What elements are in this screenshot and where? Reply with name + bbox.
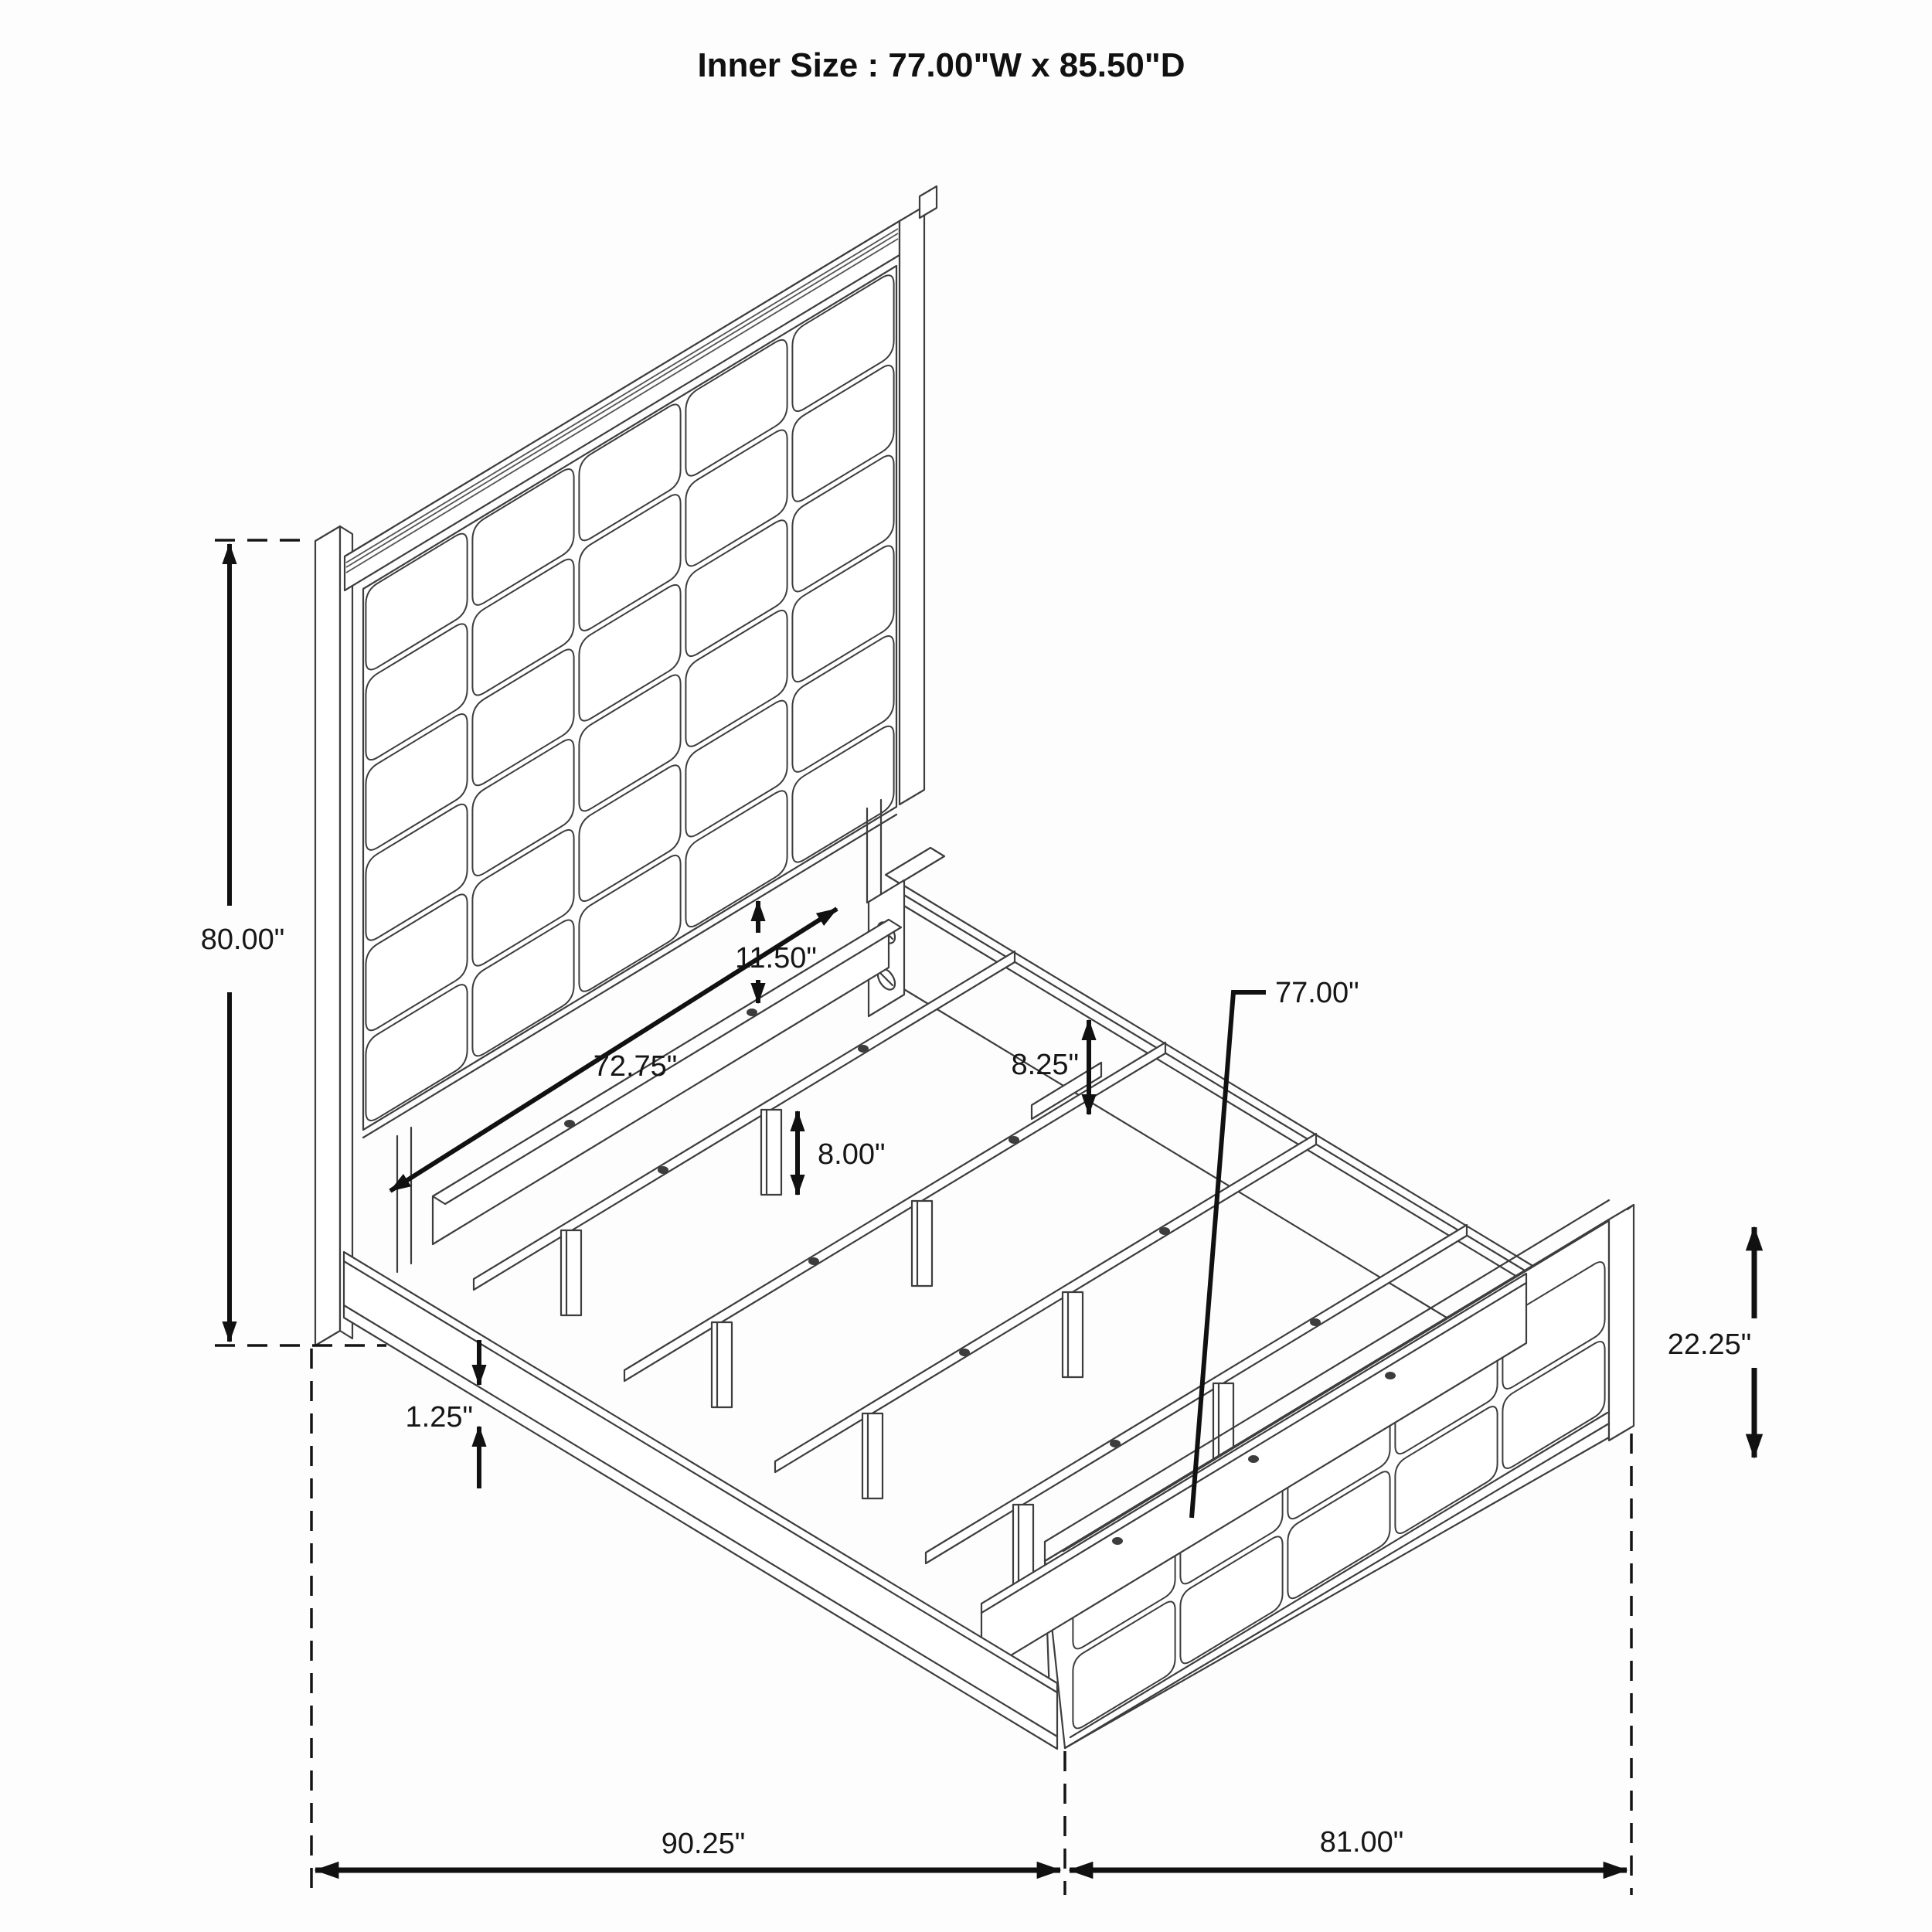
- screw-dot: [959, 1349, 970, 1356]
- dim-label-base-trim: 1.25": [406, 1401, 473, 1434]
- headboard: [315, 186, 937, 1345]
- dim-footboard-height: 22.25": [1668, 1227, 1754, 1458]
- screw-dot: [1310, 1318, 1321, 1326]
- support-leg: [862, 1413, 883, 1498]
- screw-dot: [1248, 1455, 1259, 1463]
- screw-dot: [747, 1009, 757, 1016]
- dim-overall-length: 90.25": [315, 1828, 1060, 1870]
- support-leg: [561, 1230, 581, 1315]
- dim-label-overall-length: 90.25": [662, 1828, 746, 1860]
- screw-dot: [1009, 1136, 1019, 1144]
- dim-overall-width: 81.00": [1070, 1826, 1627, 1870]
- dim-label-inner-width: 72.75": [594, 1050, 678, 1083]
- dim-label-footboard-height: 22.25": [1668, 1328, 1752, 1361]
- screw-dot: [564, 1120, 575, 1128]
- slat: [775, 1134, 1316, 1472]
- screw-dot: [658, 1166, 668, 1174]
- dim-label-leg-height: 8.00": [818, 1138, 885, 1171]
- support-leg: [912, 1201, 932, 1286]
- footboard-right-post: [1609, 1205, 1634, 1440]
- support-leg: [1063, 1292, 1083, 1377]
- dim-label-slat-length: 77.00": [1275, 977, 1359, 1009]
- screw-dot: [1110, 1440, 1121, 1447]
- headboard-left-post-side: [340, 526, 352, 1338]
- diagram-page: 80.00" 11.50" 72.75" 8.25" 77.00" 8.00": [0, 0, 1932, 1932]
- dim-headboard-height: 80.00": [201, 544, 285, 1342]
- headboard-right-post: [900, 206, 924, 804]
- headboard-right-post-tab: [920, 186, 937, 218]
- screw-dot: [858, 1045, 869, 1053]
- headboard-left-post: [315, 526, 340, 1345]
- support-leg: [712, 1322, 732, 1407]
- dim-label-headboard-height: 80.00": [201, 923, 285, 956]
- bed-frame-dimension-diagram: 80.00" 11.50" 72.75" 8.25" 77.00" 8.00": [0, 0, 1932, 1932]
- slat: [624, 1043, 1165, 1381]
- dim-leg-height: 8.00": [798, 1111, 885, 1195]
- dim-label-overall-width: 81.00": [1320, 1826, 1404, 1859]
- support-leg: [761, 1110, 781, 1195]
- dim-label-rail-height: 8.25": [1012, 1049, 1079, 1081]
- footboard: [1045, 1200, 1634, 1748]
- diagram-title: Inner Size : 77.00"W x 85.50"D: [697, 46, 1185, 84]
- screw-dot: [1112, 1537, 1123, 1545]
- screw-dot: [1385, 1372, 1396, 1379]
- screw-dot: [1159, 1227, 1170, 1235]
- side-rail-right-head-cap: [886, 848, 944, 883]
- screw-dot: [808, 1257, 819, 1265]
